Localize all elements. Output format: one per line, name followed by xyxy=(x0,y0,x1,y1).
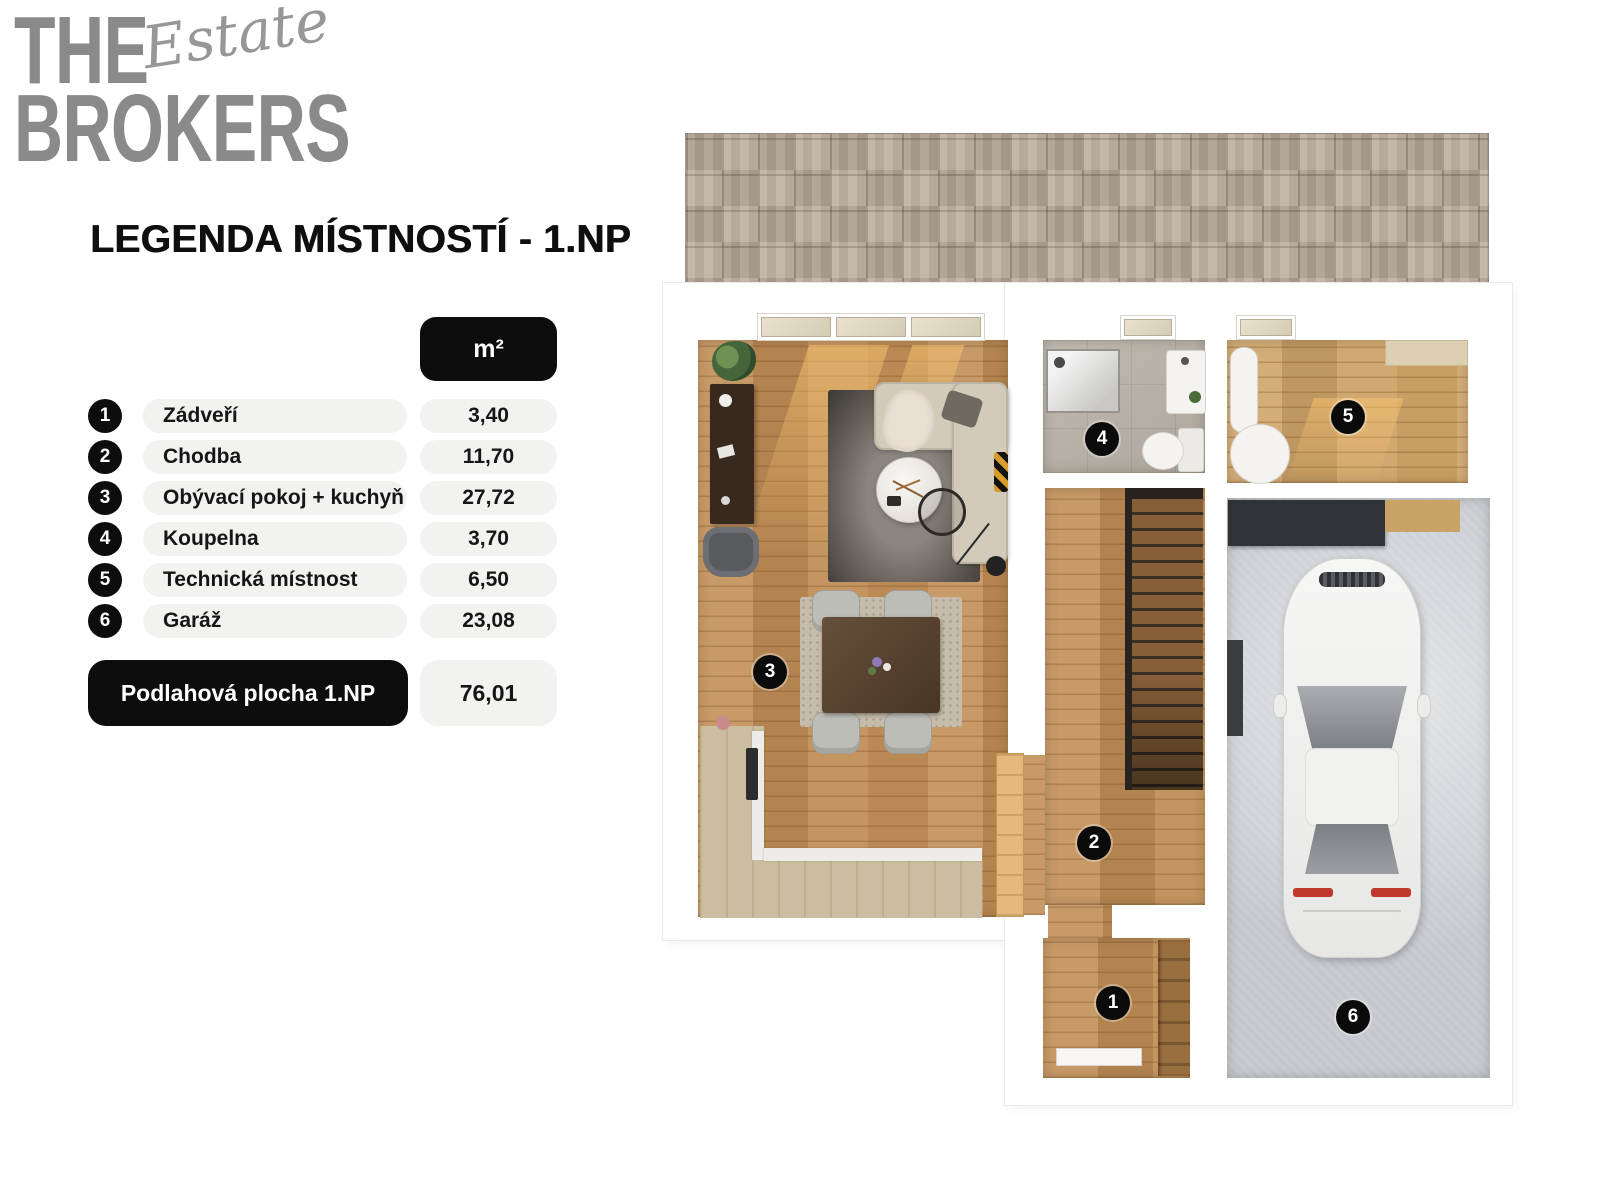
entry-door-threshold xyxy=(1056,1048,1142,1066)
legend-row-badge: 1 xyxy=(88,399,122,433)
window-pane xyxy=(761,317,831,337)
legend-row-name: Zádveří xyxy=(143,399,407,433)
table-flowers xyxy=(872,657,882,667)
table-flowers xyxy=(868,667,876,675)
entry-wardrobe xyxy=(1158,940,1190,1076)
total-area-label: Podlahová plocha 1.NP xyxy=(88,660,408,726)
dining-chair xyxy=(812,712,860,754)
logo-line-brokers: BROKERS xyxy=(14,88,350,171)
plan-badge-garage: 6 xyxy=(1336,1000,1370,1034)
living-window xyxy=(757,313,985,341)
legend-row-area: 27,72 xyxy=(420,481,557,515)
sink-plant xyxy=(1189,391,1201,403)
legend-row-badge: 6 xyxy=(88,604,122,638)
flyer-page: THE BROKERS Estate LEGENDA MÍSTNOSTÍ - 1… xyxy=(0,0,1600,1200)
staircase xyxy=(1125,488,1203,790)
decor-pot xyxy=(716,716,730,730)
legend-row-area: 6,50 xyxy=(420,563,557,597)
doorway-hall-entry xyxy=(1048,905,1112,938)
plan-badge-living: 3 xyxy=(753,655,787,689)
legend-row-name: Garáž xyxy=(143,604,407,638)
plan-badge-technical: 5 xyxy=(1331,400,1365,434)
logo-script-estate: Estate xyxy=(138,0,334,82)
technical-window xyxy=(1236,315,1296,340)
decor-item xyxy=(721,496,730,505)
garage-wall-panel xyxy=(1227,640,1243,736)
legend-row-area: 11,70 xyxy=(420,440,557,474)
total-area-value: 76,01 xyxy=(420,660,557,726)
bathroom-window xyxy=(1120,315,1176,340)
page-title: LEGENDA MÍSTNOSTÍ - 1.NP xyxy=(90,218,631,262)
plan-badge-entry: 1 xyxy=(1096,986,1130,1020)
kitchen-counter-edge xyxy=(764,848,982,861)
car-top-view xyxy=(1283,558,1421,958)
dining-chair xyxy=(884,712,932,754)
window-pane xyxy=(836,317,906,337)
legend-row-badge: 2 xyxy=(88,440,122,474)
round-table xyxy=(1230,424,1290,484)
wire-side-table xyxy=(918,488,966,536)
car-mirror xyxy=(1273,694,1287,718)
faucet xyxy=(1181,357,1189,365)
car-trunk-line xyxy=(1303,910,1401,912)
water-heater xyxy=(1230,347,1258,433)
car-grille xyxy=(1319,572,1385,587)
decor-tray xyxy=(887,496,901,506)
bathroom-sink xyxy=(1166,350,1206,414)
car-taillight xyxy=(1293,888,1333,897)
legend-row-badge: 4 xyxy=(88,522,122,556)
car-windshield xyxy=(1297,686,1407,750)
car-rear-window xyxy=(1305,824,1399,874)
tech-counter xyxy=(1385,340,1468,366)
tv-sideboard xyxy=(710,384,754,524)
shower xyxy=(1046,349,1120,413)
armchair xyxy=(703,527,759,577)
decor-item xyxy=(717,444,735,459)
floor-lamp-head xyxy=(986,556,1006,576)
table-flowers xyxy=(883,663,891,671)
plan-badge-hall: 2 xyxy=(1077,826,1111,860)
legend-row-name: Technická místnost xyxy=(143,563,407,597)
garage-workbench-wood xyxy=(1385,500,1460,532)
legend-row-area: 3,40 xyxy=(420,399,557,433)
car-roof xyxy=(1305,748,1399,826)
window-pane xyxy=(1240,319,1292,336)
legend-row-badge: 5 xyxy=(88,563,122,597)
car-taillight xyxy=(1371,888,1411,897)
area-unit-header: m² xyxy=(420,317,557,381)
dining-table xyxy=(822,617,940,713)
legend-row-badge: 3 xyxy=(88,481,122,515)
legend-row-area: 3,70 xyxy=(420,522,557,556)
window-pane xyxy=(911,317,981,337)
legend-row-name: Obývací pokoj + kuchyň xyxy=(143,481,407,515)
legend-row-area: 23,08 xyxy=(420,604,557,638)
patio-pavers xyxy=(685,133,1489,285)
legend-row-name: Koupelna xyxy=(143,522,407,556)
sofa-pillow-yellow xyxy=(994,452,1008,492)
car-mirror xyxy=(1417,694,1431,718)
plan-badge-bathroom: 4 xyxy=(1085,422,1119,456)
kitchen-counter-horizontal xyxy=(700,860,982,918)
open-door-leaf xyxy=(996,753,1024,917)
legend-row-name: Chodba xyxy=(143,440,407,474)
shower-head xyxy=(1054,357,1065,368)
garage-workbench xyxy=(1228,500,1385,546)
cooktop xyxy=(746,748,758,800)
toilet-bowl xyxy=(1142,432,1184,470)
window-pane xyxy=(1124,319,1172,336)
decor-item xyxy=(719,394,732,407)
